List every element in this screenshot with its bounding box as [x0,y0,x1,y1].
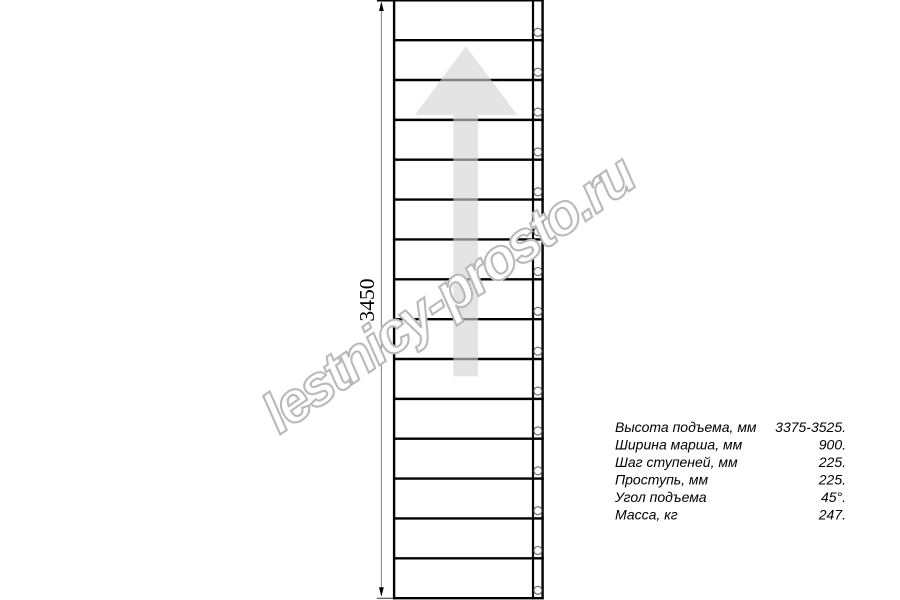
svg-text:Высота подъема, мм: Высота подъема, мм [615,419,757,435]
svg-text:Проступь, мм: Проступь, мм [615,472,709,488]
svg-text:3375-3525.: 3375-3525. [775,419,846,435]
svg-text:900.: 900. [819,437,846,453]
svg-text:Ширина марша, мм: Ширина марша, мм [615,437,743,453]
svg-text:Угол подъема: Угол подъема [614,489,707,505]
svg-text:Шаг ступеней, мм: Шаг ступеней, мм [615,454,738,470]
svg-text:225.: 225. [818,472,846,488]
svg-text:247.: 247. [818,507,846,523]
svg-text:Масса, кг: Масса, кг [615,507,678,523]
svg-text:225.: 225. [818,454,846,470]
svg-text:45°.: 45°. [821,489,846,505]
